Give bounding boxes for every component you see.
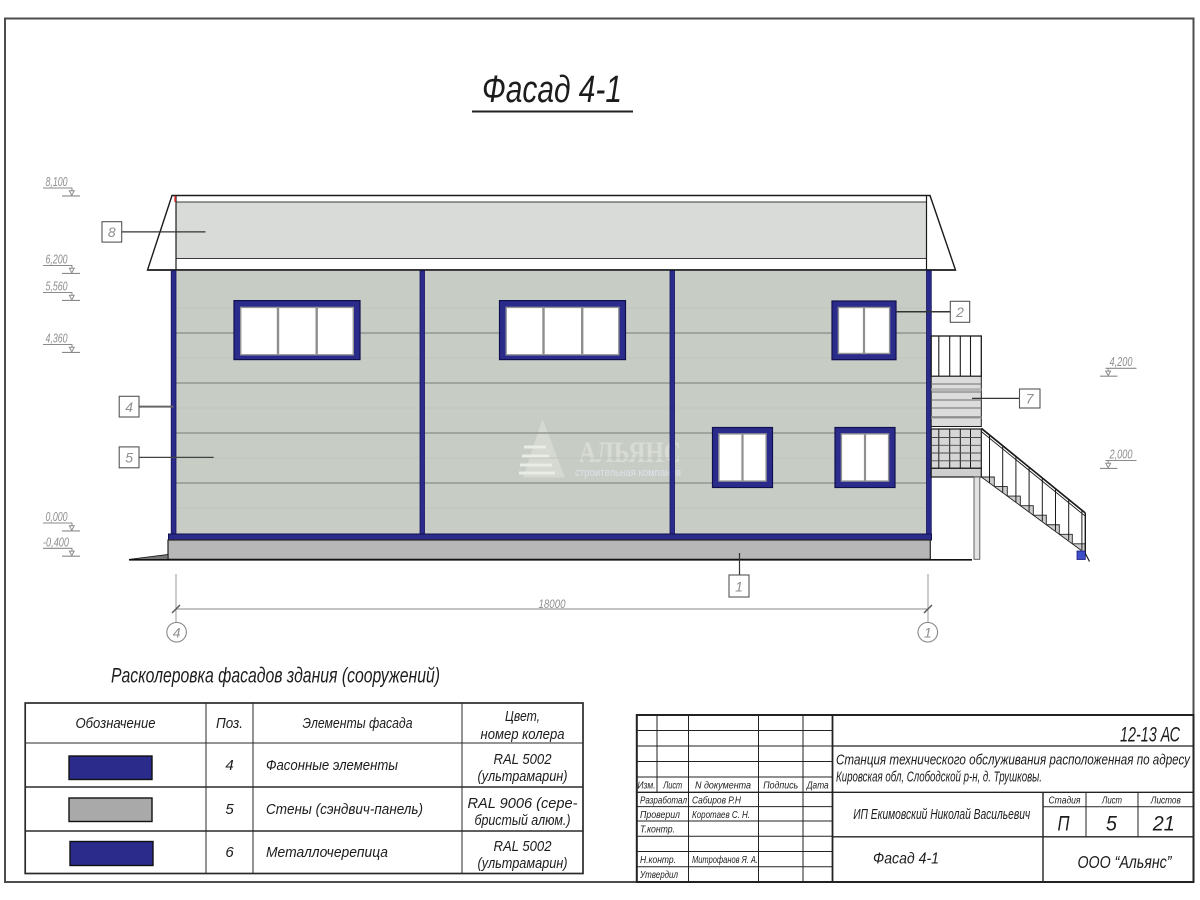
svg-text:Металлочерепица: Металлочерепица bbox=[266, 844, 388, 861]
svg-text:номер колера: номер колера bbox=[481, 726, 565, 743]
svg-text:Митрофанов Я. А.: Митрофанов Я. А. bbox=[692, 854, 758, 866]
svg-text:6,200: 6,200 bbox=[46, 252, 69, 267]
svg-text:Изм.: Изм. bbox=[638, 781, 656, 792]
svg-text:Станция технического обслужива: Станция технического обслуживания распол… bbox=[836, 752, 1191, 769]
svg-text:Фасад 4-1: Фасад 4-1 bbox=[482, 69, 622, 111]
svg-text:5: 5 bbox=[1106, 813, 1117, 836]
svg-text:Коротаев С. Н.: Коротаев С. Н. bbox=[692, 809, 750, 821]
svg-text:(ультрамарин): (ультрамарин) bbox=[478, 768, 568, 785]
svg-text:RAL 5002: RAL 5002 bbox=[494, 751, 553, 768]
svg-text:5: 5 bbox=[225, 801, 234, 818]
svg-text:Стены (сэндвич-панель): Стены (сэндвич-панель) bbox=[266, 801, 423, 818]
svg-text:Сабиров Р.Н: Сабиров Р.Н bbox=[692, 795, 741, 807]
svg-text:Дата: Дата bbox=[806, 781, 829, 792]
svg-text:Цвет,: Цвет, bbox=[505, 708, 540, 725]
svg-text:2,000: 2,000 bbox=[1109, 446, 1133, 461]
svg-text:4: 4 bbox=[173, 624, 181, 640]
svg-text:-0,400: -0,400 bbox=[43, 534, 70, 549]
svg-text:Разработал: Разработал bbox=[640, 795, 687, 807]
svg-text:ООО “Альянс”: ООО “Альянс” bbox=[1078, 852, 1173, 872]
svg-text:0,000: 0,000 bbox=[46, 509, 69, 524]
svg-text:6: 6 bbox=[225, 844, 234, 861]
svg-text:Утвердил: Утвердил bbox=[639, 869, 678, 881]
svg-text:Фасад 4-1: Фасад 4-1 bbox=[873, 851, 939, 868]
svg-text:ИП Екимовский Николай Васильев: ИП Екимовский Николай Васильевич bbox=[853, 807, 1030, 823]
svg-text:Кировская обл, Слободской р-н,: Кировская обл, Слободской р-н, д. Трушко… bbox=[836, 769, 1042, 786]
svg-text:21: 21 bbox=[1152, 813, 1175, 836]
svg-text:2: 2 bbox=[955, 304, 964, 320]
svg-text:RAL 9006 (сере-: RAL 9006 (сере- bbox=[468, 795, 578, 812]
svg-text:Лист: Лист bbox=[1101, 796, 1122, 807]
svg-text:1: 1 bbox=[924, 624, 932, 640]
svg-text:5,560: 5,560 bbox=[46, 279, 69, 294]
svg-text:N документа: N документа bbox=[695, 781, 751, 792]
svg-text:Стадия: Стадия bbox=[1049, 796, 1082, 807]
svg-text:Подпись: Подпись bbox=[763, 781, 798, 792]
svg-text:RAL 5002: RAL 5002 bbox=[494, 838, 553, 855]
svg-text:4: 4 bbox=[125, 399, 133, 415]
svg-text:АЛЬЯНС: АЛЬЯНС bbox=[579, 436, 681, 469]
svg-text:Лист: Лист bbox=[662, 781, 682, 792]
svg-text:Н.контр.: Н.контр. bbox=[640, 854, 676, 866]
svg-text:5: 5 bbox=[125, 449, 133, 465]
svg-text:Листов: Листов bbox=[1150, 796, 1181, 807]
svg-text:8: 8 bbox=[108, 224, 116, 240]
svg-text:Обозначение: Обозначение bbox=[76, 715, 156, 732]
svg-text:Поз.: Поз. bbox=[216, 715, 243, 732]
svg-text:4,360: 4,360 bbox=[46, 331, 69, 346]
svg-text:Элементы фасада: Элементы фасада bbox=[303, 715, 413, 732]
svg-text:П: П bbox=[1058, 813, 1071, 836]
svg-text:7: 7 bbox=[1026, 391, 1035, 407]
svg-text:4: 4 bbox=[225, 757, 233, 774]
svg-text:18000: 18000 bbox=[539, 597, 566, 611]
svg-text:бристый алюм.): бристый алюм.) bbox=[475, 812, 571, 829]
svg-text:4,200: 4,200 bbox=[1110, 354, 1134, 369]
svg-text:(ультрамарин): (ультрамарин) bbox=[478, 855, 568, 872]
svg-text:1: 1 bbox=[735, 579, 743, 595]
svg-text:8,100: 8,100 bbox=[46, 174, 69, 189]
svg-text:строительная компания: строительная компания bbox=[575, 467, 681, 479]
svg-text:Фасонные элементы: Фасонные элементы bbox=[266, 757, 398, 774]
svg-text:12-13 АС: 12-13 АС bbox=[1120, 724, 1181, 747]
svg-text:Т.контр.: Т.контр. bbox=[640, 824, 675, 836]
svg-text:Проверил: Проверил bbox=[640, 809, 680, 821]
svg-text:Расколеровка фасадов здания (с: Расколеровка фасадов здания (сооружений) bbox=[111, 665, 440, 688]
